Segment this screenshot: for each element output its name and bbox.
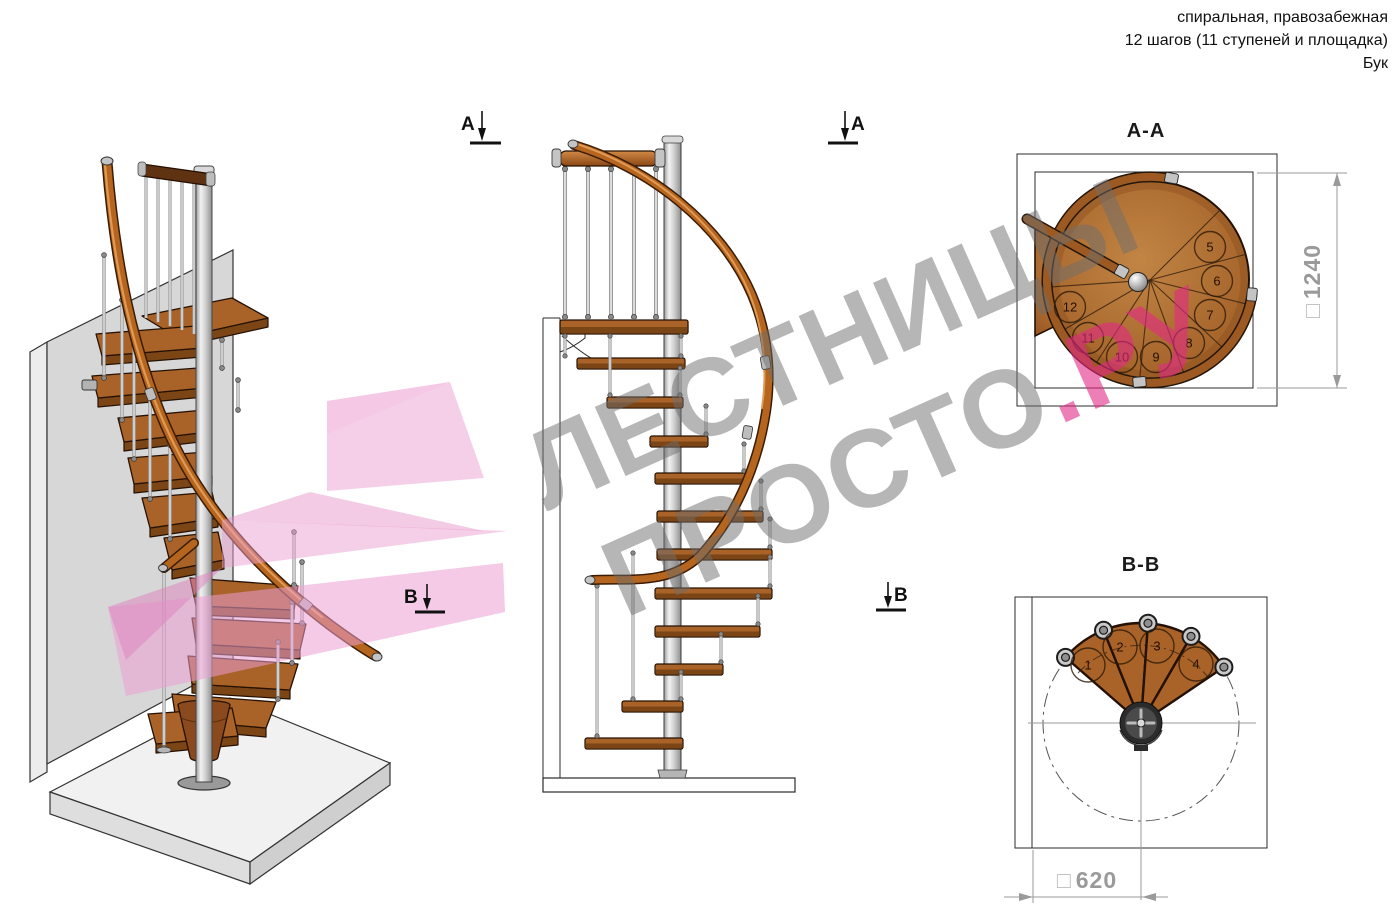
step-number-label: 2 (1116, 640, 1123, 655)
rod-collar (102, 376, 107, 381)
stair-type-label: спиральная, правозабежная (1125, 6, 1388, 29)
rod-collar (719, 632, 723, 636)
rod-collar (768, 555, 772, 559)
rod-collar (759, 507, 763, 511)
rod-collar (585, 166, 590, 171)
rod-collar (236, 378, 241, 383)
bolt (1095, 622, 1112, 639)
rod-collar (742, 442, 746, 446)
rod-collar (276, 697, 281, 702)
step-shading (651, 442, 707, 447)
step-shading (623, 707, 682, 712)
rod-collar (704, 404, 708, 408)
step-number-label: 5 (1206, 240, 1213, 255)
rod-collar (102, 253, 107, 258)
step-number-label: 9 (1152, 350, 1159, 365)
rod-collar (679, 354, 683, 358)
rod-collar (290, 661, 295, 666)
rod-collar (148, 497, 153, 502)
rod-collar (768, 545, 772, 549)
svg-text:A: A (461, 114, 475, 135)
rod-collar (608, 393, 612, 397)
rod-collar (768, 584, 772, 588)
dimension-620-label: □620 (1057, 867, 1117, 893)
step-shading (578, 364, 684, 369)
bolt-inner (1144, 619, 1152, 627)
rod-collar (678, 393, 682, 397)
rod-collar (608, 314, 613, 319)
spiral-staircase-3d-view (30, 157, 507, 884)
spiral-staircase-elevation-view (543, 136, 795, 792)
rod-collar (220, 338, 225, 343)
rod-collar (679, 670, 683, 674)
step-number-label: 11 (1081, 331, 1095, 346)
center-pole-elevation (658, 136, 687, 778)
section-arrow-icon (478, 128, 486, 141)
rod-collar (759, 479, 763, 483)
technical-drawing-page: { "header": { "line1": "спиральная, прав… (0, 0, 1400, 911)
step-number-label: 10 (1115, 350, 1129, 365)
rod-collar (631, 697, 635, 701)
step-number-label: 3 (1153, 639, 1160, 654)
step-shading (658, 517, 762, 522)
rod-collar (756, 594, 760, 598)
railing-balusters-elevation (562, 166, 658, 320)
floor-outline (543, 778, 795, 792)
wall-outline (543, 318, 603, 778)
rod-collar (608, 166, 613, 171)
step-shading (656, 594, 771, 599)
title-block: спиральная, правозабежная 12 шагов (11 с… (1125, 6, 1388, 76)
rod-collar (220, 366, 225, 371)
step-shading (608, 403, 682, 408)
rod-collar (300, 560, 305, 565)
rod-collar (563, 334, 567, 338)
rod-collar (236, 408, 241, 413)
step-shading (586, 744, 682, 749)
step-number-label: 7 (1206, 308, 1213, 323)
rod-collar (631, 551, 635, 555)
step-shading (656, 632, 759, 637)
newel-ball (1129, 273, 1148, 292)
rod-foot (157, 747, 171, 753)
rod-collar (679, 334, 683, 338)
section-aa-title: A-A (1127, 120, 1166, 142)
rod-collar (768, 517, 772, 521)
section-arrow-icon (884, 596, 892, 608)
rod-collar (756, 622, 760, 626)
rod-collar (120, 418, 125, 423)
step-count-label: 12 шагов (11 ступеней и площадка) (1125, 29, 1388, 52)
rod-collar (608, 334, 612, 338)
step-shading (658, 555, 771, 560)
section-bb-title: B-B (1122, 554, 1161, 576)
dimension-620: □620 (1004, 850, 1168, 903)
bolt-inner (1220, 663, 1228, 671)
rod-collar (562, 314, 567, 319)
step-number-label: 6 (1213, 274, 1220, 289)
material-label: Бук (1125, 52, 1388, 75)
rod-collar (653, 314, 658, 319)
step-number-label: 1 (1084, 658, 1091, 673)
rod-collar (704, 432, 708, 436)
step-shading (656, 479, 746, 484)
rod-collar (168, 537, 173, 542)
section-aa-view: A-A 56789101112 □1240 (1017, 120, 1347, 406)
bolt-inner (1100, 626, 1108, 634)
section-marker-a-right: A (828, 111, 865, 143)
rod-collar (562, 166, 567, 171)
rod-collar (678, 366, 682, 370)
section-marker-a-left: A (461, 111, 501, 143)
step-number-label: 8 (1185, 336, 1192, 351)
step-shading (656, 670, 722, 675)
step-number-label: 12 (1063, 300, 1077, 315)
step-number-label: 4 (1192, 657, 1199, 672)
staircase-drawing: A A B B A-A (0, 0, 1400, 911)
bolt (1183, 628, 1200, 645)
section-marker-b-right: B (876, 582, 908, 610)
bolt (1215, 659, 1232, 676)
svg-text:A: A (851, 114, 865, 135)
rod-collar (679, 697, 683, 701)
section-bb-view: B-B 1234 □620 (1004, 554, 1267, 903)
rod-collar (719, 660, 723, 664)
dimension-1240-label: □1240 (1299, 244, 1325, 318)
section-arrow-icon (841, 128, 849, 141)
rod-collar (595, 734, 599, 738)
svg-text:B: B (894, 585, 908, 606)
bolt-inner (1062, 653, 1070, 661)
bolt-inner (1187, 632, 1195, 640)
center-pole-3d (194, 166, 214, 782)
rod-collar (631, 314, 636, 319)
rod-collar (585, 314, 590, 319)
rod-collar (132, 457, 137, 462)
dimension-1240: □1240 (1257, 173, 1347, 388)
center-hub (1120, 702, 1162, 751)
rod-collar (563, 354, 567, 358)
platform-elevation (560, 320, 688, 334)
svg-text:B: B (404, 587, 418, 608)
